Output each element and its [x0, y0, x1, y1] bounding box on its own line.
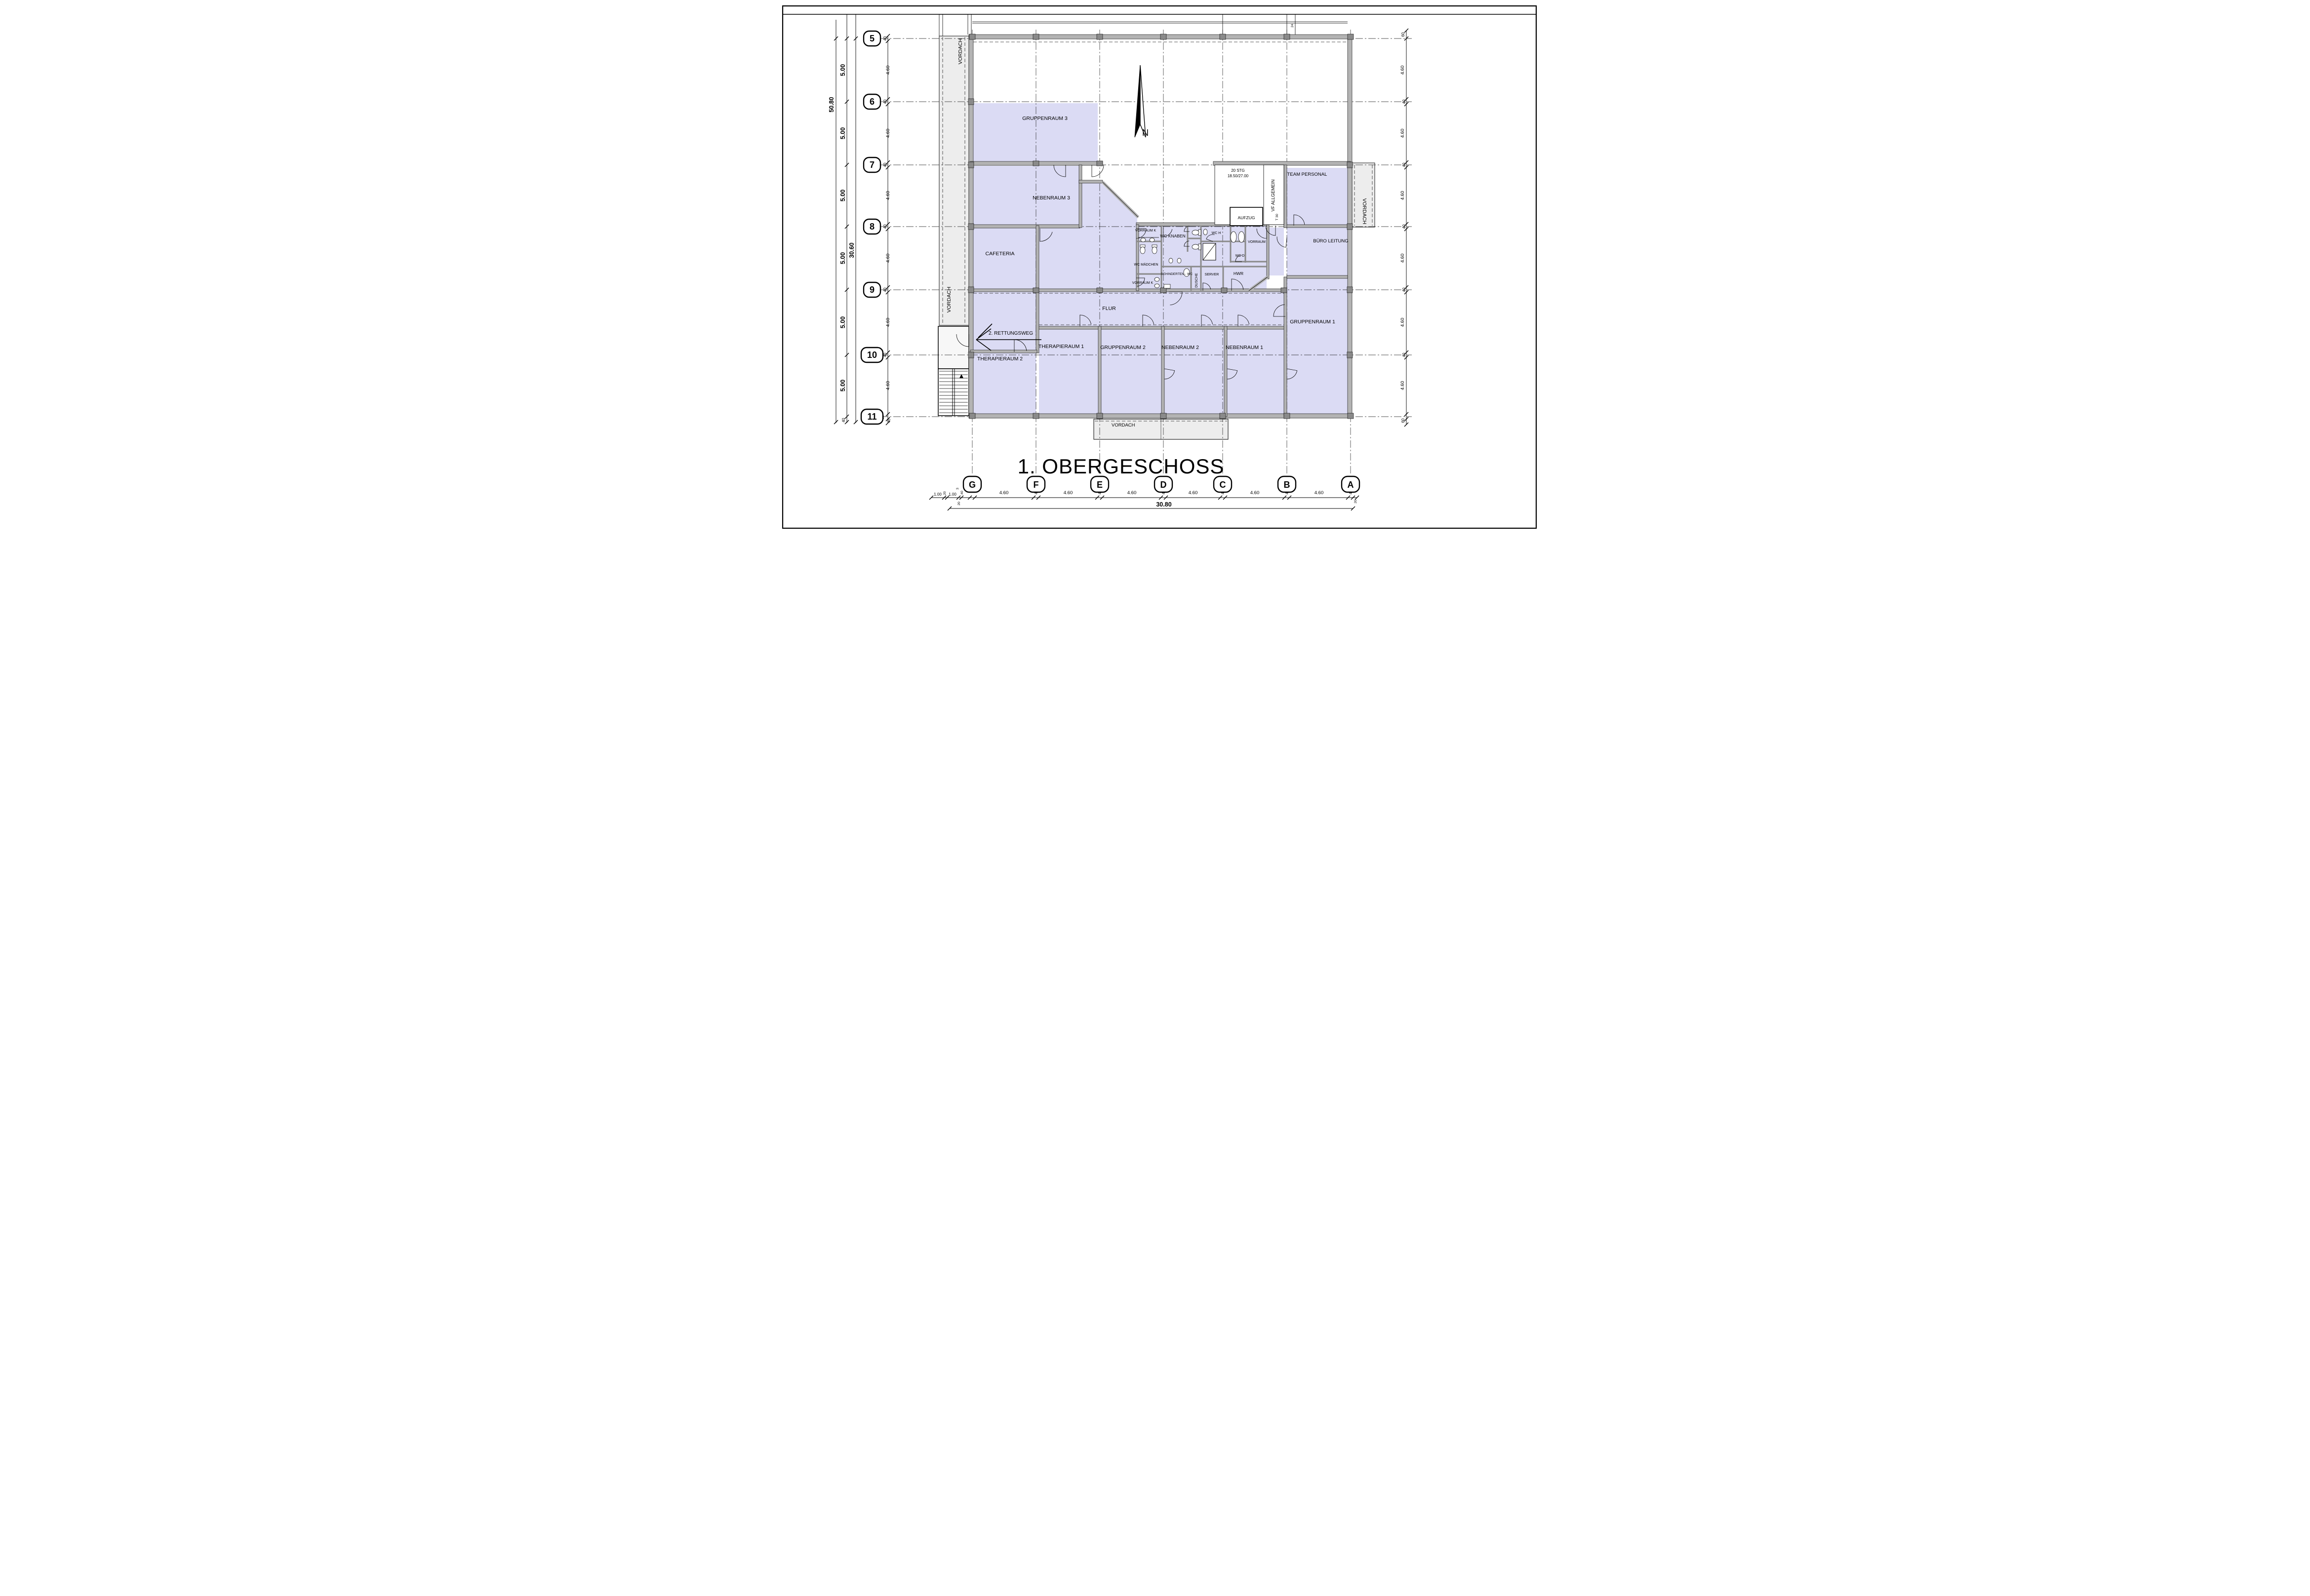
fill-buero-leitung [1287, 228, 1348, 275]
dim-bottom-20-end: 20 [1354, 500, 1357, 504]
grid-bubble-row-label-8: 8 [869, 222, 874, 232]
fill-nebenraum-2 [1164, 329, 1224, 414]
column-top-2 [1097, 34, 1103, 39]
dim-left-460-0: 4.60 [885, 66, 891, 75]
column-corridor-1 [1097, 288, 1103, 293]
dim-bottom-460-0: 4.60 [999, 490, 1008, 496]
fill-therapieraum-2 [973, 353, 1036, 414]
grid-bubble-row-label-5: 5 [869, 34, 874, 43]
urinal [1203, 229, 1207, 235]
dim-left-5m-3: 5.00 [839, 252, 846, 264]
grid-bubble-row-label-9: 9 [869, 285, 874, 295]
door-arc-1 [1092, 165, 1104, 177]
dim-left-40-1: 40 [883, 99, 887, 104]
wall-11 [1036, 226, 1039, 292]
room-fills [973, 103, 1348, 414]
column-row7-0 [1033, 161, 1039, 166]
wall-12 [970, 289, 1285, 292]
column-right-2 [1347, 287, 1353, 293]
grid-bubble-row-label-7: 7 [869, 160, 874, 170]
dim-left-40-0: 40 [883, 36, 887, 40]
dim-bottom-20a: 20 [943, 491, 947, 495]
column-top-0 [969, 34, 975, 39]
label-nebenraum-1: NEBENRAUM 1 [1226, 345, 1263, 350]
label-hwr: HWR [1233, 271, 1243, 276]
dim-bottom-3: 3 [956, 488, 959, 490]
dim-left-40b-end: 40 [888, 419, 891, 423]
left-inner-total-label: 30.60 [848, 242, 855, 258]
dim-left-5m-5: 5.00 [839, 380, 846, 391]
dim-right-460: 4.60 [1400, 381, 1405, 390]
dim-left-460-1: 4.60 [885, 129, 891, 138]
column-right-3 [1347, 352, 1353, 358]
urinal [1231, 232, 1236, 242]
fill-nebenraum-1 [1227, 329, 1284, 414]
wall-10 [1079, 180, 1103, 183]
sink-accessible [1164, 284, 1170, 288]
sink [1155, 277, 1159, 281]
north-label: N [1142, 128, 1149, 138]
north-arrow-right [1140, 65, 1146, 137]
column-corridor-3 [1221, 288, 1227, 293]
fill-gruppenraum-3 [973, 103, 1098, 161]
exterior-stair [938, 369, 969, 416]
wall-20 [1287, 275, 1348, 278]
label-dusche: DUSCHE [1195, 273, 1198, 288]
urinal [1238, 232, 1244, 242]
label-vf-allgemein: VF ALLGEMEIN [1271, 179, 1275, 211]
label-flur: FLUR [1102, 306, 1116, 311]
wall-15 [970, 350, 1037, 353]
column-top-1 [1033, 34, 1039, 39]
toilet [1192, 230, 1199, 235]
toilet [1152, 247, 1157, 254]
column-right-0 [1347, 162, 1353, 168]
label-team-personal: TEAM PERSONAL [1287, 172, 1327, 177]
stair-rise-run-label: 18.50/27.00 [1227, 174, 1248, 178]
column-bottom-4 [1220, 413, 1226, 419]
dim-right-40: 40 [1402, 162, 1406, 167]
dim-left-5m-0: 5.00 [839, 64, 846, 76]
label-wc-maedchen: WC MÄDCHEN [1134, 263, 1158, 267]
column-corridor-0 [1033, 288, 1039, 293]
fill-gruppenraum-2 [1101, 329, 1161, 414]
dim-left-460-5: 4.60 [885, 381, 891, 390]
wall-9 [1079, 165, 1082, 228]
column-bottom-3 [1160, 413, 1166, 419]
label-t30: T 30 [1275, 214, 1279, 221]
dim-right-60-top: 60 [1401, 32, 1405, 37]
grid-bubble-row-label-10: 10 [867, 350, 876, 360]
label-vordach-left-top: VORDACH [957, 39, 963, 65]
dim-right-460: 4.60 [1400, 254, 1405, 263]
dim-bottom-100a: 1.00 [934, 492, 942, 497]
dim-right-60-bottom: 60 [1401, 418, 1405, 423]
column-corridor-2 [1160, 288, 1166, 293]
fill-vestibule [973, 292, 1036, 350]
dim-bottom-100b: 1.00 [949, 492, 956, 497]
dim-right-460: 4.60 [1400, 66, 1405, 75]
label-vordach-right: VORDACH [1361, 198, 1367, 225]
toilet [1192, 244, 1199, 249]
dim-left-40-5: 40 [883, 352, 887, 357]
grid-bubble-col-label-E: E [1096, 480, 1102, 490]
fill-gruppenraum-1 [1287, 278, 1348, 414]
dim-right-460: 4.60 [1400, 191, 1405, 200]
column-bottom-1 [1033, 413, 1039, 419]
label-gruppenraum-1: GRUPPENRAUM 1 [1290, 319, 1335, 325]
label-cafeteria: CAFETERIA [985, 251, 1014, 257]
label-nebenraum-2: NEBENRAUM 2 [1161, 345, 1199, 350]
dim-left-460-4: 4.60 [885, 318, 891, 327]
drawing-sheet: 5.005.005.005.005.005.00404040404040404.… [769, 0, 1542, 534]
sink [1155, 284, 1159, 288]
dim-right-40: 40 [1402, 287, 1406, 292]
dim-right-40: 40 [1402, 352, 1406, 357]
label-server: SERVER [1204, 273, 1219, 276]
label-wc-d: WC D [1235, 254, 1244, 258]
railing-dim-label: 24 [1291, 24, 1294, 28]
label-wc-knaben: WC KNABEN [1160, 234, 1185, 238]
dim-right-460: 4.60 [1400, 318, 1405, 327]
label-vorraum-k-unten: VORRAUM K [1132, 281, 1153, 285]
column-left-3 [968, 287, 974, 293]
label-buero-leitung: BÜRO LEITUNG [1313, 238, 1348, 244]
column-left-2 [968, 224, 974, 230]
dim-bottom-460-2: 4.60 [1127, 490, 1136, 496]
label-therapieraum-2: THERAPIERAUM 2 [977, 356, 1022, 362]
sink [1141, 238, 1146, 242]
vordach-left-strip [939, 36, 969, 325]
stair-steps-label: 20 STG [1231, 168, 1245, 173]
grid-bubble-row-label-11: 11 [867, 412, 876, 422]
exterior-platform [938, 326, 969, 369]
dim-left-40-end: 40 [841, 418, 846, 422]
wall-22 [1136, 225, 1139, 291]
label-behinderten-wc: BEHINDERTEN - WC [1161, 272, 1193, 276]
urinal [1169, 258, 1173, 263]
dim-left-40-3: 40 [883, 224, 887, 229]
label-vorraum-k-oben: VORRAUM K [1135, 229, 1156, 233]
column-top-4 [1220, 34, 1226, 39]
bottom-total-label: 30.80 [1156, 501, 1171, 508]
floorplan-svg: 5.005.005.005.005.005.00404040404040404.… [769, 0, 1542, 534]
label-wc-h: WC H [1211, 232, 1221, 235]
label-aufzug: AUFZUG [1237, 215, 1255, 220]
column-bottom-6 [1348, 413, 1354, 419]
dim-left-40-4: 40 [883, 287, 887, 292]
column-top-3 [1160, 34, 1166, 39]
wall-21 [1284, 165, 1287, 228]
dim-bottom-20b: 20 [957, 502, 961, 506]
label-rettungsweg: 2. RETTUNGSWEG [988, 331, 1033, 336]
dim-right-40: 40 [1402, 224, 1406, 229]
column-bottom-5 [1284, 413, 1290, 419]
wall-16 [1098, 326, 1101, 417]
dim-left-5m-4: 5.00 [839, 316, 846, 328]
grid-bubble-col-label-D: D [1160, 480, 1166, 490]
column-bottom-2 [1097, 413, 1103, 419]
grid-bubble-col-label-G: G [968, 480, 975, 490]
dim-right-40: 40 [1402, 99, 1406, 104]
column-top-5 [1284, 34, 1290, 39]
column-left-1 [968, 162, 974, 168]
page-title: 1. OBERGESCHOSS [1017, 455, 1224, 478]
label-vordach-bottom: VORDACH [1112, 423, 1135, 428]
grid-bubble-col-label-F: F [1033, 480, 1038, 490]
grid-bubble-col-label-C: C [1219, 480, 1226, 490]
dim-left-5m-2: 5.00 [839, 190, 846, 201]
left-total-label: 50.80 [828, 97, 835, 112]
dim-bottom-460-4: 4.60 [1250, 490, 1259, 496]
dim-right-460: 4.60 [1400, 129, 1405, 138]
dim-left-460-3: 4.60 [885, 254, 891, 263]
north-arrow-icon: N [1135, 65, 1149, 138]
column-left-0 [968, 99, 974, 105]
dim-left-5m-1: 5.00 [839, 127, 846, 139]
column-corridor-4 [1281, 288, 1287, 293]
column-bottom-0 [969, 413, 975, 419]
grid-bubble-col-label-B: B [1283, 480, 1290, 490]
grid-bubble-row-label-6: 6 [869, 97, 874, 107]
dim-bottom-460-1: 4.60 [1063, 490, 1073, 496]
column-right-1 [1347, 224, 1353, 230]
toilet [1140, 247, 1145, 254]
sink [1150, 238, 1155, 242]
label-vordach-left-bottom: VORDACH [946, 287, 952, 313]
label-vorraum: VORRAUM [1248, 240, 1266, 244]
north-arrow-left [1135, 65, 1140, 137]
urinal [1177, 258, 1181, 263]
fill-therapieraum-1 [1039, 329, 1098, 414]
label-nebenraum-3: NEBENRAUM 3 [1033, 195, 1070, 201]
label-gruppenraum-3: GRUPPENRAUM 3 [1022, 116, 1068, 121]
dim-left-460-2: 4.60 [885, 191, 891, 200]
fill-cafeteria [973, 228, 1036, 289]
wall-17 [1161, 326, 1164, 417]
grid-bubble-col-label-A: A [1347, 480, 1354, 490]
dim-left-40-2: 40 [883, 162, 887, 167]
column-top-6 [1348, 34, 1354, 39]
wall-19 [1284, 277, 1287, 417]
wall-18 [1224, 326, 1227, 417]
dim-bottom-460-5: 4.60 [1314, 490, 1323, 496]
label-therapieraum-1: THERAPIERAUM 1 [1038, 344, 1083, 350]
dim-bottom-40g: 40 [960, 491, 964, 495]
column-left-4 [968, 352, 974, 358]
dim-bottom-460-3: 4.60 [1188, 490, 1197, 496]
wall-6 [970, 225, 1080, 228]
label-gruppenraum-2: GRUPPENRAUM 2 [1100, 345, 1146, 350]
column-row7-1 [1097, 161, 1103, 166]
